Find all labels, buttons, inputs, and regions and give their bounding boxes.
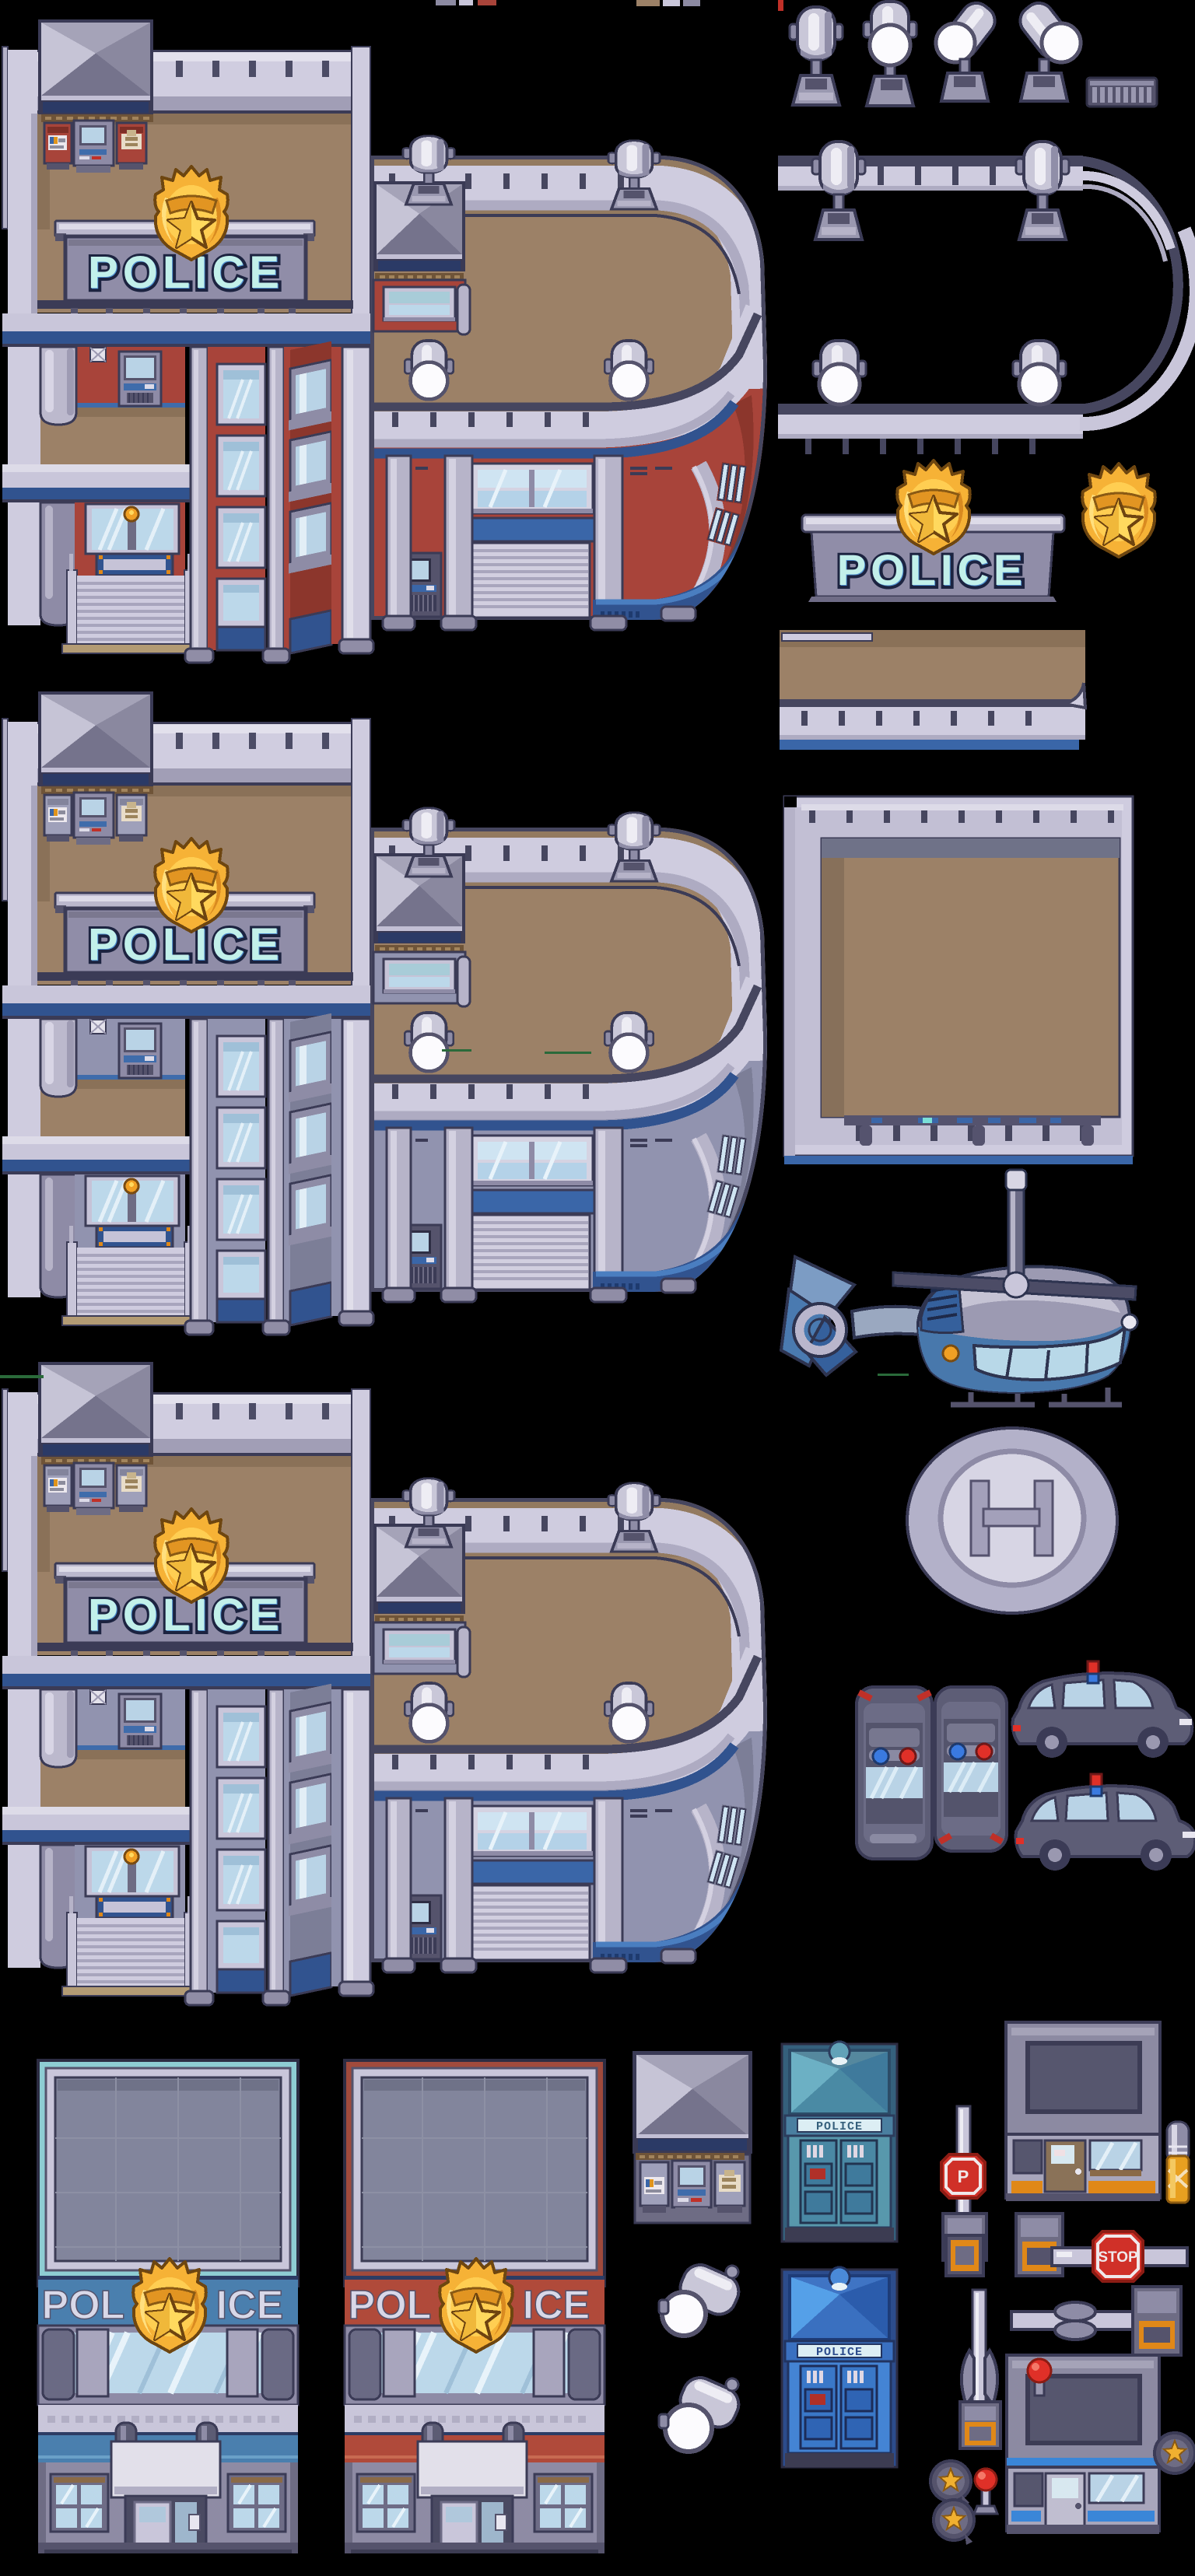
svg-text:P: P [958,2167,969,2186]
svg-text:POLICE: POLICE [816,2120,863,2133]
svg-text:POLICE: POLICE [816,2346,863,2359]
svg-text:STOP: STOP [1098,2249,1138,2266]
